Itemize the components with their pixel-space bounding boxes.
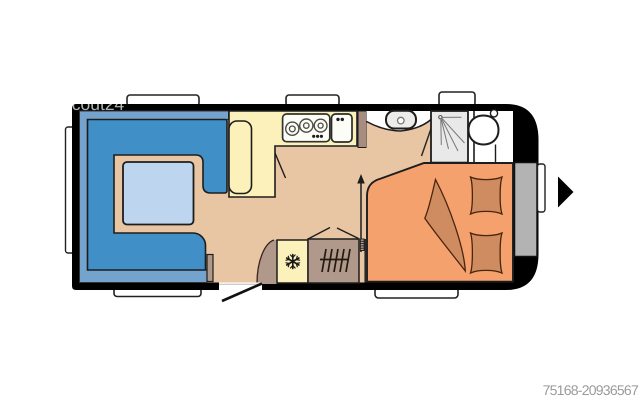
svg-text:75168-20936567: 75168-20936567 <box>543 382 639 398</box>
svg-text:scout24: scout24 <box>63 94 125 114</box>
